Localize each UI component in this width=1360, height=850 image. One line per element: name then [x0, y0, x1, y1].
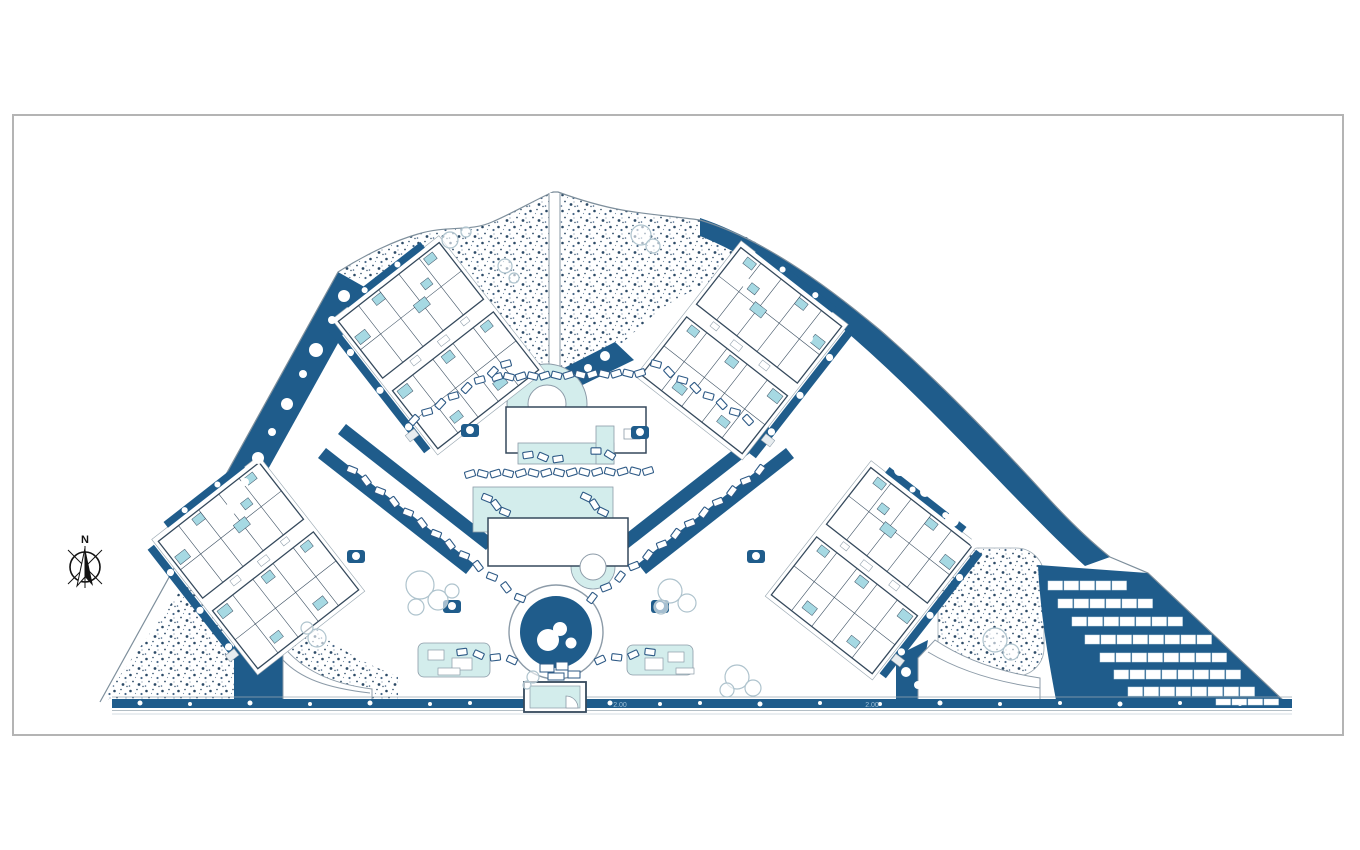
shrub	[448, 602, 456, 610]
shrub	[526, 364, 534, 372]
solar-panel	[1104, 617, 1119, 626]
tree	[445, 584, 459, 598]
deck-detail	[645, 658, 663, 670]
shrub	[226, 502, 238, 514]
shrub	[252, 452, 264, 464]
solar-panel	[1212, 653, 1227, 662]
deck-detail	[676, 668, 694, 674]
solar-panel	[1064, 581, 1079, 590]
sunbed	[490, 654, 501, 662]
solar-panel	[1122, 599, 1137, 608]
solar-panel	[1101, 635, 1116, 644]
solar-panel	[1048, 581, 1063, 590]
shrub	[849, 421, 875, 447]
solar-panel	[1148, 653, 1163, 662]
shrub	[584, 364, 592, 372]
sunbed	[611, 654, 622, 662]
shrub	[466, 426, 474, 434]
deck-detail	[668, 652, 684, 662]
shrub	[695, 447, 705, 457]
street-shrub	[468, 701, 472, 705]
shrub	[338, 290, 350, 302]
street-shrub	[308, 702, 312, 706]
solar-panel	[1074, 599, 1089, 608]
solar-panel	[1146, 670, 1161, 679]
shrub	[752, 552, 760, 560]
solar-panel	[1224, 687, 1239, 696]
shrub	[407, 497, 417, 507]
solar-panel	[1072, 617, 1087, 626]
street-shrub	[998, 702, 1002, 706]
tree	[442, 232, 458, 248]
shrub	[636, 428, 644, 436]
sunbed	[523, 451, 534, 459]
street-shrub	[658, 702, 662, 706]
water-feature-rock	[566, 638, 577, 649]
solar-panel	[1152, 617, 1167, 626]
north-label: N	[81, 534, 89, 546]
solar-panel	[1216, 699, 1231, 705]
solar-panel	[1090, 599, 1105, 608]
deck-detail	[438, 668, 460, 675]
shrub	[914, 681, 922, 689]
solar-panel	[1112, 581, 1127, 590]
street-shrub	[138, 701, 143, 706]
tree	[720, 683, 734, 697]
tree	[509, 273, 519, 283]
street-shrub	[1058, 701, 1062, 705]
solar-panel	[1130, 670, 1145, 679]
solar-panel	[1096, 581, 1111, 590]
solar-panel	[1133, 635, 1148, 644]
shrub	[309, 343, 323, 357]
shrub	[376, 472, 384, 480]
shrub	[970, 538, 980, 548]
solar-panel	[1180, 653, 1195, 662]
solar-panel	[1088, 617, 1103, 626]
street-shrub	[608, 701, 613, 706]
spa-island	[580, 554, 606, 580]
site-plan-sheet: 2.00 2.00 N	[0, 0, 1360, 850]
solar-panel	[1178, 670, 1193, 679]
solar-panel	[1192, 687, 1207, 696]
shrub	[803, 333, 813, 343]
solar-panel	[1144, 687, 1159, 696]
entrance-kiosk	[548, 673, 564, 680]
paper-background	[0, 0, 1360, 850]
shrub	[268, 428, 276, 436]
solar-panel	[1264, 699, 1279, 705]
solar-panel	[1162, 670, 1177, 679]
shrub	[328, 316, 336, 324]
shrub	[600, 351, 610, 361]
solar-panel	[1208, 687, 1223, 696]
solar-panel	[1165, 635, 1180, 644]
solar-panel	[1085, 635, 1100, 644]
solar-panel	[1138, 599, 1153, 608]
solar-panel	[1058, 599, 1073, 608]
tree	[498, 259, 512, 273]
water-feature-rock	[553, 622, 567, 636]
tree	[461, 227, 471, 237]
deck-detail	[428, 650, 444, 660]
dimension-label: 2.00	[865, 702, 879, 709]
tree	[646, 239, 660, 253]
solar-panel	[1181, 635, 1196, 644]
tree	[523, 681, 531, 689]
entrance-kiosk	[540, 664, 554, 672]
street-shrub	[368, 701, 373, 706]
shrub	[345, 447, 355, 457]
solar-panel	[1120, 617, 1135, 626]
sunbed	[591, 448, 601, 454]
solar-panel	[1160, 687, 1175, 696]
shrub	[241, 478, 249, 486]
street-shrub	[1118, 702, 1123, 707]
entrance-kiosk	[568, 671, 580, 678]
solar-panel	[1136, 617, 1151, 626]
shrub	[920, 487, 930, 497]
shrub	[901, 667, 911, 677]
shrub	[894, 464, 906, 476]
shrub	[352, 552, 360, 560]
solar-panel	[1226, 670, 1241, 679]
solar-panel	[1116, 653, 1131, 662]
street-shrub	[698, 701, 702, 705]
solar-panel	[1197, 635, 1212, 644]
main-pool	[488, 518, 628, 566]
entrance-kiosk	[556, 662, 568, 670]
tree	[745, 680, 761, 696]
sunbed	[553, 455, 564, 463]
solar-panel	[1248, 699, 1263, 705]
shrub	[871, 441, 887, 457]
street-shrub	[428, 702, 432, 706]
shrub	[770, 303, 784, 317]
solar-panel	[1132, 653, 1147, 662]
solar-panel	[1100, 653, 1115, 662]
street-shrub	[758, 702, 763, 707]
tree	[408, 599, 424, 615]
street-shrub	[938, 701, 943, 706]
sunbed	[457, 648, 468, 656]
solar-panel	[1196, 653, 1211, 662]
street-shrub	[248, 701, 253, 706]
site-plan-drawing: 2.00 2.00 N	[0, 0, 1360, 850]
tree	[1003, 644, 1019, 660]
solar-panel	[1194, 670, 1209, 679]
solar-panel	[1168, 617, 1183, 626]
central-path	[549, 193, 560, 368]
solar-panel	[1164, 653, 1179, 662]
shrub	[440, 524, 448, 532]
shrub	[299, 370, 307, 378]
street-shrub	[818, 701, 822, 705]
solar-panel	[1114, 670, 1129, 679]
shrub	[740, 277, 750, 287]
solar-panel	[1176, 687, 1191, 696]
shrub	[668, 472, 676, 480]
solar-panel	[1149, 635, 1164, 644]
solar-panel	[1080, 581, 1095, 590]
solar-panel	[1128, 687, 1143, 696]
solar-panel	[1240, 687, 1255, 696]
shrub	[245, 635, 255, 645]
street-hedge	[112, 699, 1292, 708]
solar-panel	[1210, 670, 1225, 679]
solar-panel	[1106, 599, 1121, 608]
tree	[301, 622, 313, 634]
shrub	[281, 398, 293, 410]
path-surface	[549, 193, 560, 368]
shrub	[833, 365, 847, 379]
street-shrub	[188, 702, 192, 706]
tree	[654, 600, 668, 614]
shrub	[608, 524, 616, 532]
dimension-label: 2.00	[613, 702, 627, 709]
tree	[678, 594, 696, 612]
solar-panel	[1232, 699, 1247, 705]
shrub	[945, 513, 959, 527]
shrub	[635, 497, 645, 507]
street-shrub	[1178, 701, 1182, 705]
sunbed	[645, 648, 656, 656]
solar-panel	[1117, 635, 1132, 644]
shrub	[258, 651, 266, 659]
